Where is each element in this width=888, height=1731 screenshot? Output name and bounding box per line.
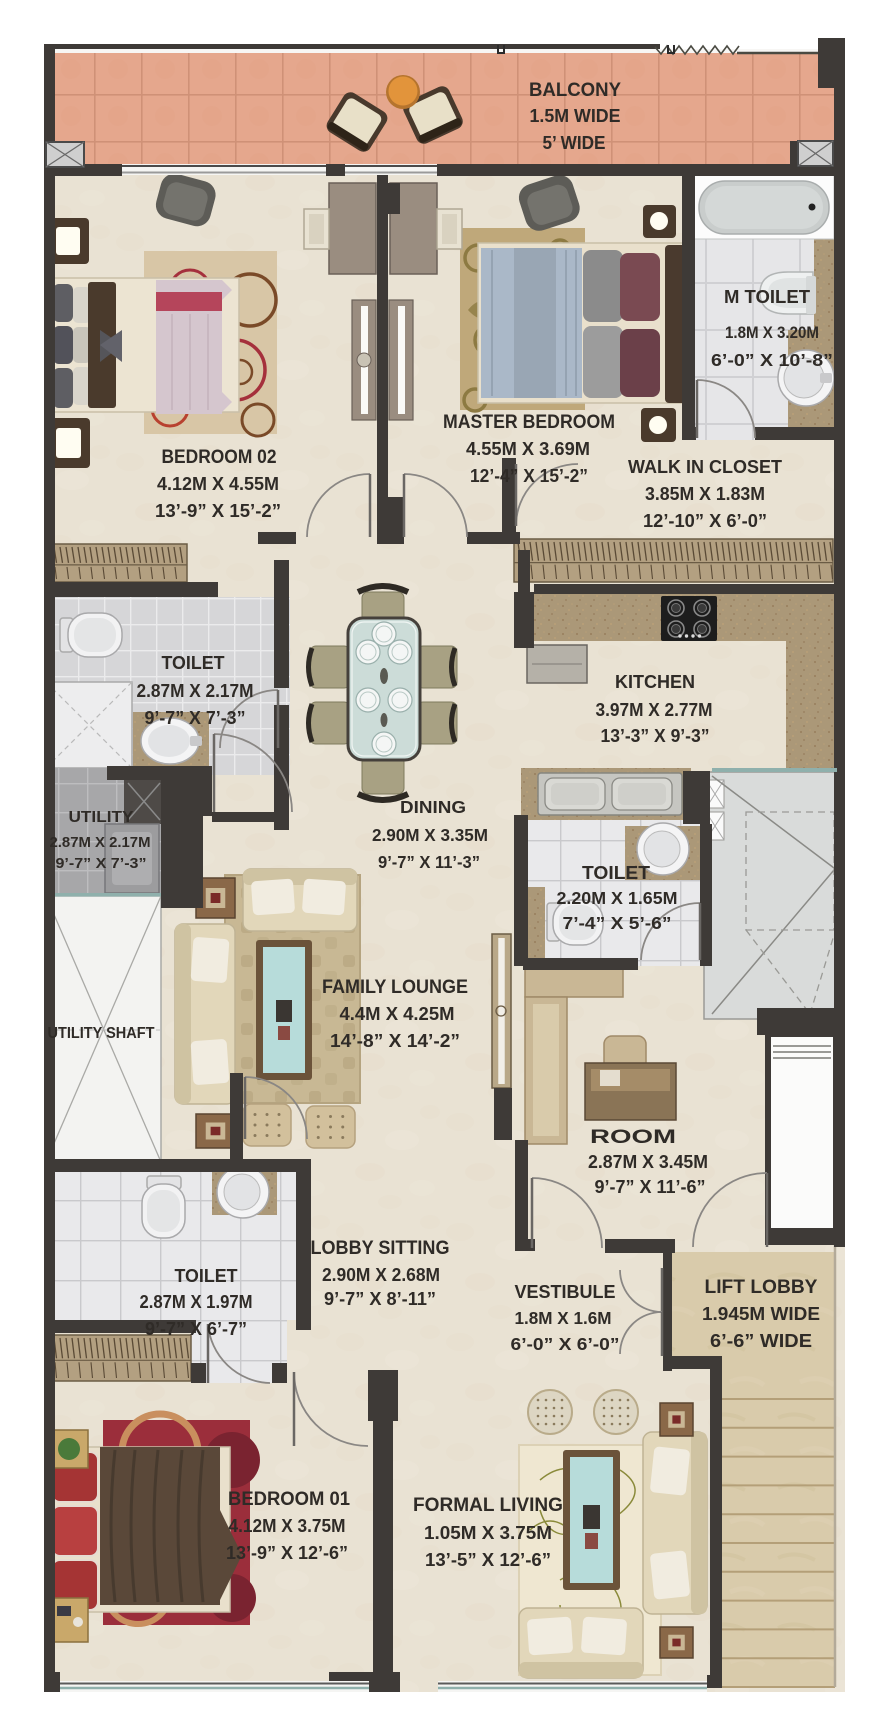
svg-text:VESTIBULE: VESTIBULE <box>515 1281 616 1302</box>
svg-text:1.5M WIDE: 1.5M WIDE <box>530 105 621 126</box>
svg-text:7’-4” X 5’-6”: 7’-4” X 5’-6” <box>563 913 672 933</box>
svg-text:1.8M X 3.20M: 1.8M X 3.20M <box>725 323 819 342</box>
svg-text:9’-7” X 11’-3”: 9’-7” X 11’-3” <box>378 852 480 872</box>
svg-text:13’-9” X 12’-6”: 13’-9” X 12’-6” <box>226 1542 348 1563</box>
svg-text:TOILET: TOILET <box>582 863 650 883</box>
svg-text:2.20M X 1.65M: 2.20M X 1.65M <box>557 888 678 908</box>
svg-text:2.87M X 3.45M: 2.87M X 3.45M <box>588 1152 708 1172</box>
svg-text:1.05M X 3.75M: 1.05M X 3.75M <box>424 1522 552 1543</box>
svg-text:4.12M X 4.55M: 4.12M X 4.55M <box>157 473 279 494</box>
svg-text:2.87M X 2.17M: 2.87M X 2.17M <box>137 681 254 701</box>
svg-text:6’-0” X 10’-8”: 6’-0” X 10’-8” <box>711 350 833 370</box>
svg-text:1.8M X 1.6M: 1.8M X 1.6M <box>515 1308 612 1328</box>
svg-text:DINING: DINING <box>400 797 466 817</box>
svg-text:4.12M X 3.75M: 4.12M X 3.75M <box>229 1515 346 1536</box>
svg-text:LOBBY SITTING: LOBBY SITTING <box>311 1238 450 1259</box>
svg-text:FORMAL LIVING: FORMAL LIVING <box>413 1495 563 1516</box>
svg-text:13’-3” X 9’-3”: 13’-3” X 9’-3” <box>601 726 710 746</box>
svg-text:WALK IN CLOSET: WALK IN CLOSET <box>628 456 783 477</box>
svg-text:2.87M X 1.97M: 2.87M X 1.97M <box>140 1292 253 1312</box>
svg-text:12’-10” X 6’-0”: 12’-10” X 6’-0” <box>643 511 767 531</box>
svg-text:4.4M X 4.25M: 4.4M X 4.25M <box>340 1003 455 1024</box>
svg-text:13’-5” X 12’-6”: 13’-5” X 12’-6” <box>425 1549 551 1570</box>
svg-text:6’-0” X 6’-0”: 6’-0” X 6’-0” <box>511 1334 620 1354</box>
svg-text:9’-7” X 7’-3”: 9’-7” X 7’-3” <box>56 855 147 872</box>
svg-text:2.87M X 2.17M: 2.87M X 2.17M <box>50 834 151 851</box>
svg-text:3.97M X 2.77M: 3.97M X 2.77M <box>596 700 713 720</box>
svg-text:2.90M X 2.68M: 2.90M X 2.68M <box>322 1265 440 1285</box>
svg-text:ROOM: ROOM <box>590 1127 676 1148</box>
svg-text:KITCHEN: KITCHEN <box>615 672 695 692</box>
svg-text:3.85M X 1.83M: 3.85M X 1.83M <box>645 484 765 504</box>
svg-text:UTILITY: UTILITY <box>69 809 135 826</box>
svg-text:M TOILET: M TOILET <box>724 287 810 307</box>
svg-text:TOILET: TOILET <box>162 653 225 673</box>
svg-text:6’-6” WIDE: 6’-6” WIDE <box>710 1331 812 1351</box>
svg-text:BEDROOM 02: BEDROOM 02 <box>162 447 277 468</box>
svg-text:9’-7” X 6’-7”: 9’-7” X 6’-7” <box>145 1319 247 1339</box>
svg-text:9’-7” X 7’-3”: 9’-7” X 7’-3” <box>145 708 246 728</box>
svg-text:1.945M WIDE: 1.945M WIDE <box>702 1304 820 1324</box>
svg-text:12’-4” X 15’-2”: 12’-4” X 15’-2” <box>470 465 588 486</box>
svg-text:4.55M X 3.69M: 4.55M X 3.69M <box>466 438 590 459</box>
svg-text:TOILET: TOILET <box>175 1266 238 1286</box>
svg-text:9’-7” X 11’-6”: 9’-7” X 11’-6” <box>595 1177 706 1197</box>
svg-text:UTILITY SHAFT: UTILITY SHAFT <box>48 1025 155 1042</box>
svg-text:9’-7” X 8’-11”: 9’-7” X 8’-11” <box>324 1289 436 1309</box>
svg-text:5’ WIDE: 5’ WIDE <box>543 132 606 153</box>
svg-text:FAMILY LOUNGE: FAMILY LOUNGE <box>322 977 468 998</box>
svg-text:14’-8” X 14’-2”: 14’-8” X 14’-2” <box>330 1030 460 1051</box>
svg-text:13’-9” X 15’-2”: 13’-9” X 15’-2” <box>155 500 281 521</box>
svg-text:2.90M X 3.35M: 2.90M X 3.35M <box>372 825 488 845</box>
svg-text:MASTER BEDROOM: MASTER BEDROOM <box>443 412 615 433</box>
svg-text:BEDROOM 01: BEDROOM 01 <box>228 1489 350 1510</box>
svg-text:LIFT LOBBY: LIFT LOBBY <box>705 1277 818 1298</box>
svg-text:BALCONY: BALCONY <box>529 80 621 101</box>
